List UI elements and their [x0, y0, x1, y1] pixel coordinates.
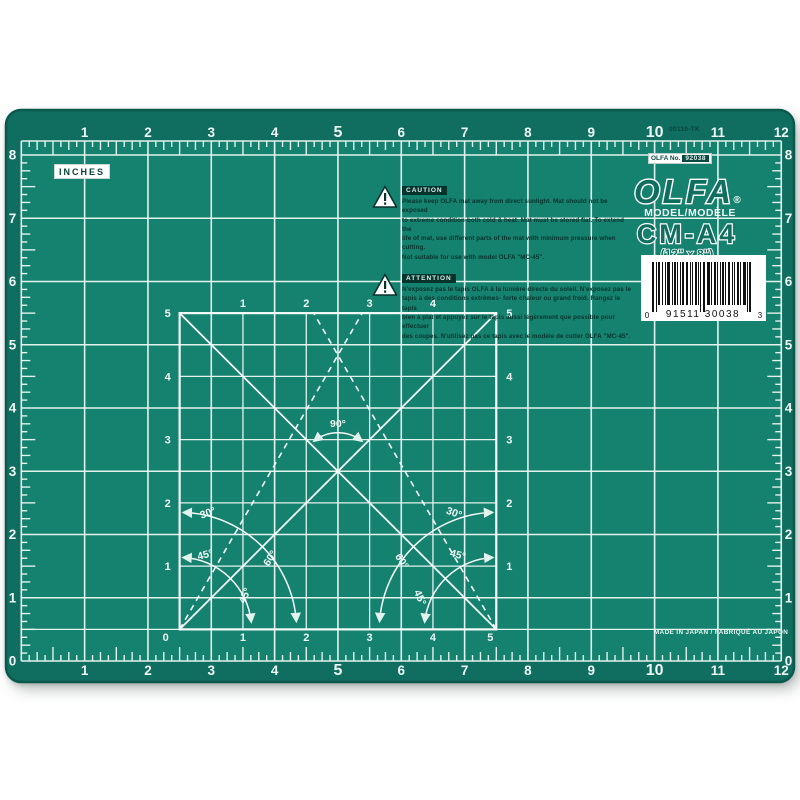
angle-label: 90° — [330, 418, 346, 430]
part-code-label: 00110-TK — [669, 126, 700, 133]
left-ruler-number: 6 — [9, 274, 17, 289]
barcode-check-digit: 3 — [758, 311, 763, 320]
left-ruler-number: 5 — [9, 337, 17, 352]
bottom-ruler-number: 4 — [271, 663, 279, 678]
barcode-digits: 91511 30038 — [666, 309, 740, 320]
square-bottom-number: 2 — [303, 632, 309, 644]
top-ruler-number: 1 — [81, 125, 89, 140]
product-photo: 1234567891011121234567891011128765432108… — [0, 0, 800, 800]
square-right-number: 1 — [506, 561, 512, 573]
cutting-mat: 1234567891011121234567891011128765432108… — [0, 0, 800, 800]
attention-row: ATTENTION N'exposez pas le tapis OLFA à … — [372, 267, 634, 341]
left-ruler-number: 2 — [9, 527, 17, 542]
bottom-ruler-number: 7 — [461, 663, 469, 678]
bottom-ruler-number: 1 — [81, 663, 89, 678]
right-ruler-number: 8 — [785, 148, 793, 163]
left-ruler-number: 7 — [9, 211, 17, 226]
right-ruler-number: 1 — [785, 590, 793, 605]
caution-header: CAUTION — [402, 186, 447, 195]
right-ruler-number: 4 — [785, 401, 793, 416]
made-in-label: MADE IN JAPAN / FABRIQUÉ AU JAPON — [654, 629, 788, 636]
top-ruler-number: 12 — [774, 125, 789, 140]
attention-text: N'exposez pas le tapis OLFA à la lumière… — [402, 285, 634, 341]
stock-number-value: 92038 — [682, 155, 709, 162]
square-bottom-number: 1 — [240, 632, 246, 644]
bottom-ruler-number: 2 — [144, 663, 152, 678]
attention-header: ATTENTION — [402, 274, 456, 283]
square-top-number: 1 — [240, 298, 246, 310]
bottom-ruler-number: 6 — [398, 663, 406, 678]
left-ruler-number: 0 — [9, 654, 17, 669]
olfa-logo: OLFA — [634, 173, 734, 210]
top-ruler-number: 9 — [588, 125, 596, 140]
square-top-number: 2 — [303, 298, 309, 310]
square-right-number: 2 — [506, 498, 512, 510]
warning-triangle-icon — [372, 179, 398, 262]
bottom-ruler-number: 10 — [646, 662, 664, 679]
square-bottom-number: 5 — [487, 632, 493, 644]
top-ruler-number: 6 — [398, 125, 406, 140]
square-left-number: 1 — [165, 561, 171, 573]
brand-block: OLFA®MODEL/MODÈLECM-A4(12" x 8") — [634, 173, 741, 261]
square-bottom-number: 0 — [163, 632, 169, 644]
bottom-ruler-number: 3 — [208, 663, 216, 678]
right-ruler-number: 7 — [785, 211, 793, 226]
square-bottom-number: 3 — [367, 632, 373, 644]
top-ruler-number: 8 — [524, 125, 532, 140]
left-ruler-number: 4 — [9, 401, 17, 416]
warning-triangle-icon — [372, 267, 398, 341]
bottom-ruler-number: 11 — [711, 663, 726, 678]
stock-number-prefix: OLFA No. — [651, 155, 680, 162]
barcode: 091511 300383 — [641, 255, 766, 321]
bottom-ruler-number: 9 — [588, 663, 596, 678]
right-ruler-number: 2 — [785, 527, 793, 542]
bottom-ruler-number: 5 — [333, 662, 342, 679]
left-ruler-number: 3 — [9, 464, 17, 479]
square-left-number: 3 — [165, 435, 171, 447]
model-label: MODEL/MODÈLE — [644, 206, 736, 219]
barcode-lead-digit: 0 — [645, 311, 650, 320]
top-ruler-number: 7 — [461, 125, 469, 140]
top-ruler-number: 5 — [333, 124, 342, 141]
caution-text: Please keep OLFA mat away from direct su… — [402, 197, 634, 262]
square-right-number: 4 — [506, 371, 513, 383]
right-ruler-number: 6 — [785, 274, 793, 289]
square-left-number: 5 — [165, 308, 171, 320]
top-ruler-number: 11 — [711, 125, 726, 140]
top-ruler-number: 10 — [646, 124, 664, 141]
top-ruler-number: 4 — [271, 125, 279, 140]
top-ruler-number: 2 — [144, 125, 152, 140]
right-ruler-number: 5 — [785, 337, 793, 352]
left-ruler-number: 1 — [9, 590, 17, 605]
stock-number-label: OLFA No. 92038 — [648, 153, 712, 164]
square-left-number: 4 — [165, 371, 172, 383]
top-ruler-number: 3 — [208, 125, 216, 140]
right-ruler-number: 3 — [785, 464, 793, 479]
square-right-number: 3 — [506, 435, 512, 447]
bottom-ruler-number: 8 — [524, 663, 532, 678]
warning-block: CAUTION Please keep OLFA mat away from d… — [372, 179, 634, 346]
right-ruler-number: 0 — [785, 654, 793, 669]
square-bottom-number: 4 — [430, 632, 437, 644]
registered-mark: ® — [733, 195, 741, 206]
square-left-number: 2 — [165, 498, 171, 510]
inches-label: INCHES — [54, 164, 110, 179]
caution-row: CAUTION Please keep OLFA mat away from d… — [372, 179, 634, 262]
model-value: CM-A4 — [637, 219, 738, 249]
left-ruler-number: 8 — [9, 148, 17, 163]
